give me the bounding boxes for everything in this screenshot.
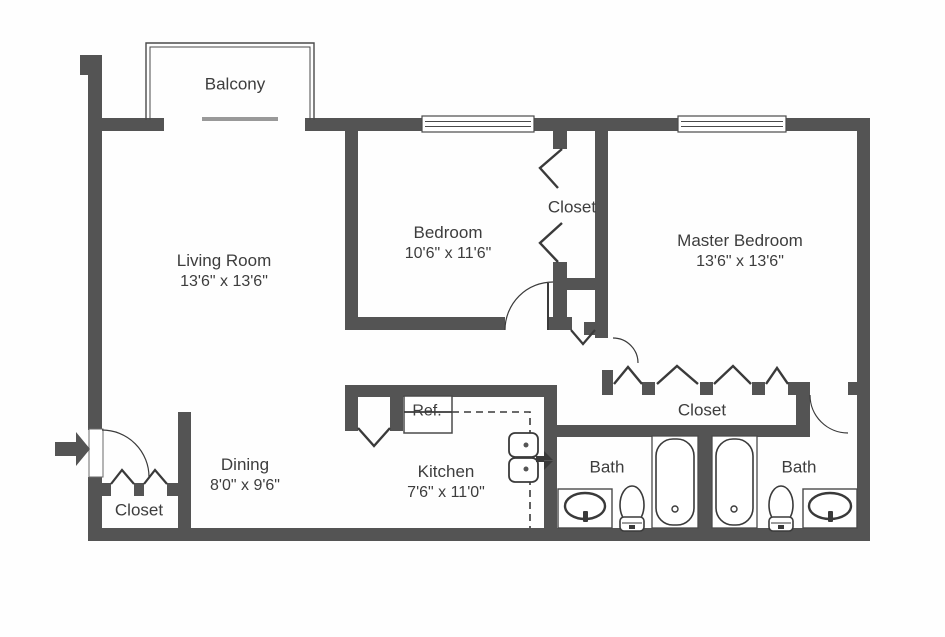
room-dimensions: 7'6" x 11'0" <box>407 482 485 503</box>
hall-closet-bifold-door-icon <box>614 366 788 384</box>
balcony-sliding-door <box>202 117 278 121</box>
bedroom-label: Bedroom 10'6" x 11'6" <box>405 222 492 264</box>
bath-right-door-swing <box>810 395 848 433</box>
room-name: Balcony <box>205 75 265 94</box>
master-bedroom-door-swing <box>613 338 638 363</box>
room-name: Kitchen <box>407 461 485 482</box>
toilet-icon <box>769 486 793 531</box>
room-dimensions: 10'6" x 11'6" <box>405 243 492 264</box>
entry-door-swing <box>89 429 149 477</box>
room-name: Master Bedroom <box>677 230 803 251</box>
room-dimensions: 13'6" x 13'6" <box>177 271 272 292</box>
living-room-label: Living Room 13'6" x 13'6" <box>177 250 272 292</box>
entry-arrow-icon <box>55 432 90 466</box>
bedroom-door-swing <box>505 282 553 330</box>
room-name: Bath <box>782 458 817 477</box>
bath-left-label: Bath <box>590 457 625 478</box>
room-name: Bath <box>590 458 625 477</box>
kitchen-label: Kitchen 7'6" x 11'0" <box>407 461 485 503</box>
bedroom-window-icon <box>422 116 534 132</box>
floor-plan-drawing <box>0 0 945 637</box>
room-name: Closet <box>678 401 726 420</box>
pantry-bifold-door-icon <box>358 428 390 446</box>
room-dimensions: 13'6" x 13'6" <box>677 251 803 272</box>
room-name: Closet <box>548 198 596 217</box>
room-name: Closet <box>115 501 163 520</box>
bedroom-closet-label: Closet <box>548 197 596 218</box>
balcony-label: Balcony <box>205 74 265 95</box>
master-bedroom-label: Master Bedroom 13'6" x 13'6" <box>677 230 803 272</box>
room-name: Living Room <box>177 250 272 271</box>
dining-label: Dining 8'0" x 9'6" <box>210 454 280 496</box>
bath-right-label: Bath <box>782 457 817 478</box>
bathtub-icon <box>712 436 757 528</box>
hall-closet-label: Closet <box>678 400 726 421</box>
entry-closet-bifold-door-icon <box>111 470 167 484</box>
bath-left-vanity <box>558 489 612 528</box>
bathtub-icon <box>652 436 698 528</box>
room-dimensions: 8'0" x 9'6" <box>210 475 280 496</box>
master-bedroom-window-icon <box>678 116 786 132</box>
room-name: Dining <box>210 454 280 475</box>
bath-right-vanity <box>803 489 857 528</box>
appliance-name: Ref. <box>412 403 441 420</box>
toilet-icon <box>620 486 644 531</box>
refrigerator-label: Ref. <box>412 401 441 422</box>
floor-plan: Balcony Living Room 13'6" x 13'6" Bedroo… <box>0 0 945 637</box>
entry-closet-label: Closet <box>115 500 163 521</box>
room-name: Bedroom <box>405 222 492 243</box>
